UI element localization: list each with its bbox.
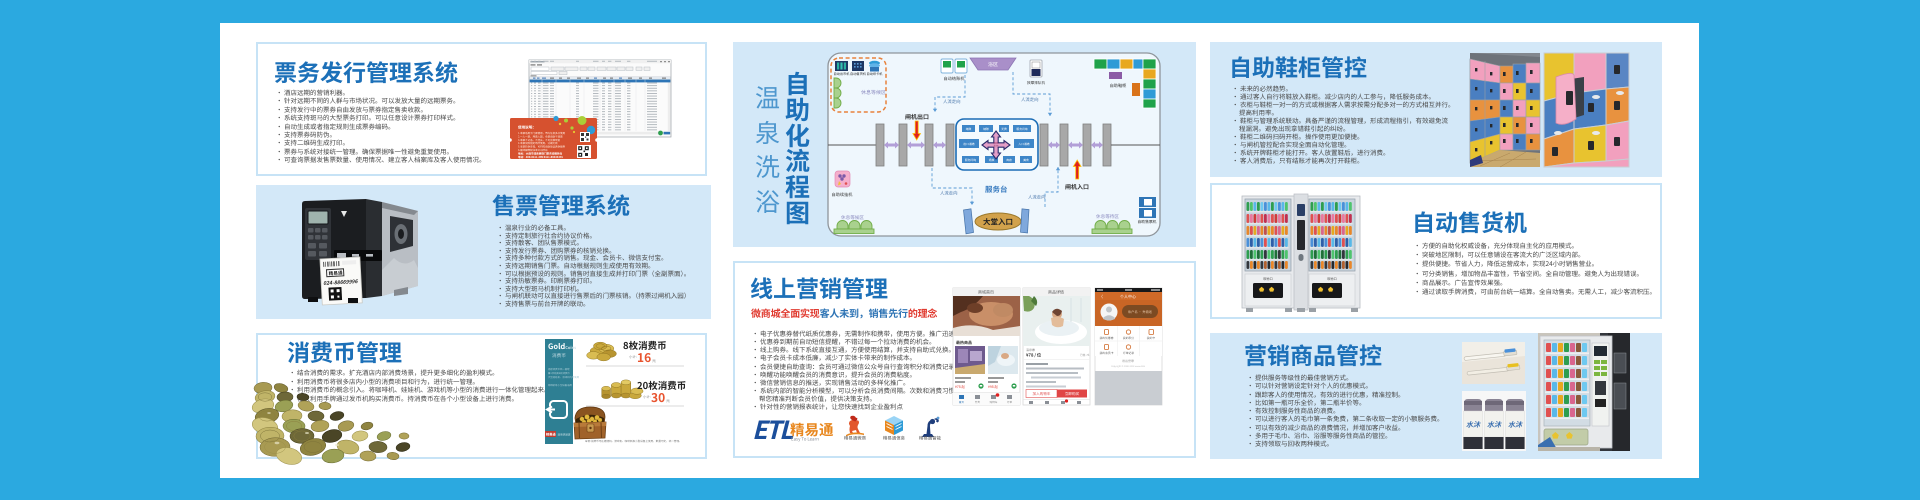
- svg-text:我的积分: 我的积分: [1123, 336, 1134, 340]
- svg-text:分类: 分类: [975, 400, 981, 404]
- svg-text:商品详情: 商品详情: [1048, 290, 1064, 296]
- svg-text:Copyright © 2008-2018 www.com: Copyright © 2008-2018 www.com: [1111, 364, 1145, 368]
- svg-text:服务问询: 服务问询: [965, 158, 976, 162]
- svg-text:订单记录: 订单记录: [1123, 351, 1134, 355]
- svg-text:闸机入口: 闸机入口: [1065, 182, 1089, 191]
- svg-text:Easy To Learn: Easy To Learn: [791, 437, 819, 443]
- svg-text:订单: 订单: [1007, 400, 1013, 404]
- svg-text:¥78 / 位: ¥78 / 位: [1026, 353, 1041, 359]
- svg-text:精易通: 精易通: [329, 270, 343, 277]
- svg-text:最热商品: 最热商品: [956, 340, 972, 346]
- svg-text:按摩排队机: 按摩排队机: [1027, 80, 1045, 86]
- svg-text:退换: 退换: [989, 158, 995, 162]
- svg-text:已售 76: 已售 76: [1080, 353, 1090, 357]
- svg-text:〈: 〈: [1099, 294, 1103, 300]
- svg-text:加入购物车: 加入购物车: [1033, 391, 1051, 397]
- svg-text:退出登录: 退出登录: [1122, 359, 1134, 363]
- svg-text:服务问询: 服务问询: [1016, 127, 1027, 131]
- svg-text:首页: 首页: [959, 400, 965, 404]
- svg-text:我的会员卡: 我的会员卡: [1100, 351, 1114, 355]
- svg-text:账户名 · 充值送: 账户名 · 充值送: [1128, 309, 1153, 314]
- svg-text:元: 元: [666, 398, 670, 404]
- svg-text:美食: 美食: [1023, 158, 1029, 162]
- svg-text:精易通微商: 精易通微商: [844, 436, 867, 442]
- svg-text:取物口: 取物口: [1263, 276, 1273, 281]
- svg-text:休息等候区: 休息等候区: [861, 89, 886, 96]
- svg-text:我的优惠券: 我的优惠券: [1100, 336, 1114, 340]
- svg-text:大堂入口: 大堂入口: [983, 217, 1013, 228]
- svg-text:水沐: 水沐: [1466, 420, 1481, 430]
- svg-text:结账: 结账: [983, 127, 989, 131]
- svg-text:自动售货机: 自动售货机: [850, 71, 867, 76]
- svg-text:人流走向: 人流走向: [1021, 97, 1039, 103]
- svg-text:商城首页: 商城首页: [978, 290, 994, 296]
- svg-text:16: 16: [637, 349, 651, 366]
- svg-text:大型娃娃机、游戏机均可使用: 大型娃娃机、游戏机均可使用: [548, 375, 580, 379]
- svg-text:个人中心: 个人中心: [1120, 294, 1136, 300]
- svg-text:¥78 起: ¥78 起: [955, 384, 965, 389]
- svg-text:我的卡: 我的卡: [1147, 336, 1156, 340]
- svg-text:自助鞋柜: 自助鞋柜: [1110, 83, 1127, 89]
- svg-text:温泉洗浴店: 温泉洗浴店: [558, 433, 571, 437]
- svg-text:精易通: 精易通: [546, 432, 556, 437]
- svg-text:自动续卡机: 自动续卡机: [867, 71, 884, 76]
- svg-text:自助售票机: 自助售票机: [1138, 219, 1157, 225]
- svg-text:人流走向: 人流走向: [943, 99, 961, 105]
- svg-text:¥98 起: ¥98 起: [988, 384, 998, 389]
- svg-text:休息等候区: 休息等候区: [841, 215, 864, 221]
- svg-text:商店: 商店: [1006, 158, 1012, 162]
- svg-text:休息等待区: 休息等待区: [1096, 214, 1119, 220]
- svg-text:ETL: ETL: [752, 411, 794, 447]
- svg-text:浴区: 浴区: [988, 61, 998, 68]
- svg-text:咖啡机等小型设备适用: 咖啡机等小型设备适用: [548, 383, 573, 387]
- svg-text:温泉票: 温泉票: [1026, 348, 1035, 352]
- svg-text:元: 元: [652, 358, 656, 364]
- svg-text:自动结账机: 自动结账机: [944, 76, 966, 82]
- svg-text:闸机出口: 闸机出口: [905, 112, 929, 121]
- svg-text:出口通道: 出口通道: [963, 142, 974, 146]
- svg-text:人流走向: 人流走向: [1028, 195, 1046, 201]
- svg-text:使用说明：: 使用说明：: [518, 125, 536, 131]
- svg-text:精易通信息: 精易通信息: [883, 436, 906, 442]
- svg-text:立即购买: 立即购买: [1065, 391, 1080, 397]
- svg-text:购物车: 购物车: [990, 400, 998, 404]
- svg-text:电话：400-0411-399 0411-88333355: 电话：400-0411-399 0411-88333355: [518, 155, 563, 159]
- svg-text:自动出币机: 自动出币机: [834, 71, 851, 76]
- svg-text:取物口: 取物口: [1327, 276, 1337, 281]
- svg-text:无费: 无费: [1001, 127, 1007, 131]
- svg-text:自助续挂机: 自助续挂机: [832, 192, 854, 198]
- svg-text:消费币: 消费币: [552, 353, 566, 359]
- svg-text:结账: 结账: [966, 127, 972, 131]
- svg-text:举例:消费币可在娃娃机、游戏机、咖啡机等小型设备上使用，数量: 举例:消费币可在娃娃机、游戏机、咖啡机等小型设备上使用，数量可定，统一管理。: [585, 439, 682, 443]
- svg-text:服务台: 服务台: [985, 184, 1008, 195]
- svg-text:30: 30: [651, 389, 665, 406]
- svg-text:精易通智能: 精易通智能: [919, 436, 942, 442]
- svg-text:入口通道: 入口通道: [1018, 142, 1029, 146]
- svg-text:大厅: 大厅: [993, 144, 999, 148]
- svg-text:人流走向: 人流走向: [940, 191, 958, 197]
